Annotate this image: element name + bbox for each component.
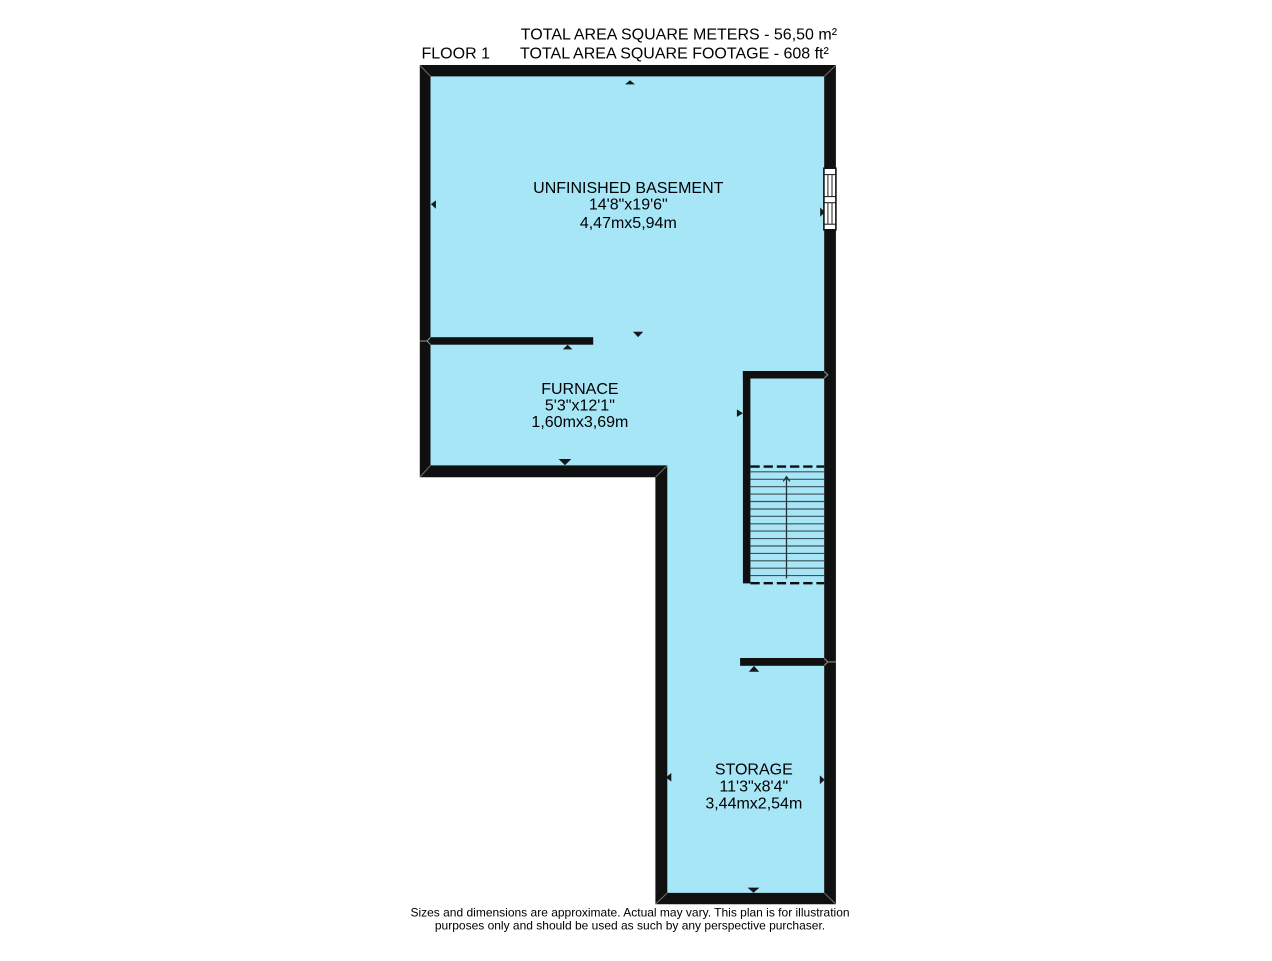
svg-text:5'3"x12'1": 5'3"x12'1" bbox=[545, 397, 615, 414]
svg-text:TOTAL AREA SQUARE FOOTAGE - 60: TOTAL AREA SQUARE FOOTAGE - 608 ft² bbox=[520, 45, 829, 62]
svg-text:14'8"x19'6": 14'8"x19'6" bbox=[589, 197, 668, 214]
svg-text:STORAGE: STORAGE bbox=[715, 762, 793, 779]
svg-text:Sizes and dimensions are appro: Sizes and dimensions are approximate. Ac… bbox=[410, 906, 849, 920]
svg-text:FLOOR 1: FLOOR 1 bbox=[422, 45, 491, 62]
svg-text:3,44mx2,54m: 3,44mx2,54m bbox=[705, 796, 802, 813]
svg-text:11'3"x8'4": 11'3"x8'4" bbox=[719, 779, 788, 796]
svg-text:UNFINISHED BASEMENT: UNFINISHED BASEMENT bbox=[533, 180, 723, 197]
svg-text:4,47mx5,94m: 4,47mx5,94m bbox=[580, 215, 677, 232]
svg-text:FURNACE: FURNACE bbox=[541, 381, 618, 398]
svg-text:purposes only and should be us: purposes only and should be used as such… bbox=[435, 919, 825, 933]
svg-text:TOTAL AREA SQUARE METERS - 56,: TOTAL AREA SQUARE METERS - 56,50 m² bbox=[521, 26, 838, 43]
svg-text:1,60mx3,69m: 1,60mx3,69m bbox=[531, 414, 628, 431]
